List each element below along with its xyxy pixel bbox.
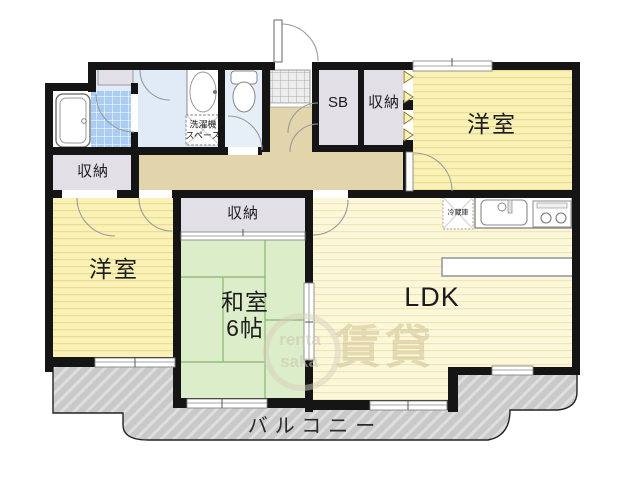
bathtub-icon (56, 94, 90, 147)
counter-bar (442, 258, 573, 276)
window-bedroom-left (95, 358, 175, 367)
window-japanese-room (187, 399, 267, 408)
bedroom-right-door-leaf (406, 152, 413, 191)
window-ldk-left (370, 401, 447, 410)
bedroom-right-label: 洋室 (467, 112, 517, 136)
shoe-box-label: SB (328, 95, 348, 111)
washer-space-label-2: スペース (186, 131, 221, 140)
bedroom-left-label: 洋室 (89, 257, 139, 281)
refrigerator-label: 冷蔵庫 (448, 209, 469, 216)
floorplan-drawing (0, 0, 640, 480)
closet-left-label: 収納 (77, 164, 109, 180)
watermark-latin-bottom: saka (280, 352, 318, 372)
washer-space-label-1: 洗濯機 (189, 120, 216, 129)
japanese-room-size-label: 6帖 (226, 316, 264, 340)
window-top (413, 58, 492, 71)
linen-shelf (98, 68, 133, 85)
balcony-label: バルコニー (248, 417, 383, 438)
entrance-tile-icon (270, 70, 310, 107)
closet-center-label: 収納 (227, 206, 259, 222)
toilet-icon (231, 71, 257, 112)
japanese-room-label: 和室 (221, 290, 269, 314)
entrance-door-icon (274, 20, 318, 62)
window-ldk-right (492, 366, 533, 375)
washbasin-icon (187, 69, 222, 117)
kitchen-sink-icon (481, 200, 527, 225)
ldk-label: LDK (404, 283, 460, 311)
closet-top-label: 収納 (368, 95, 400, 111)
watermark-text: 賃貸 (335, 311, 435, 377)
floorplan-canvas: 賃貸 renta saka 洋室 洋室 和室 6帖 LDK バルコニー 収納 収… (0, 0, 640, 480)
watermark-latin-top: renta (279, 330, 321, 350)
stove-icon (533, 201, 571, 227)
